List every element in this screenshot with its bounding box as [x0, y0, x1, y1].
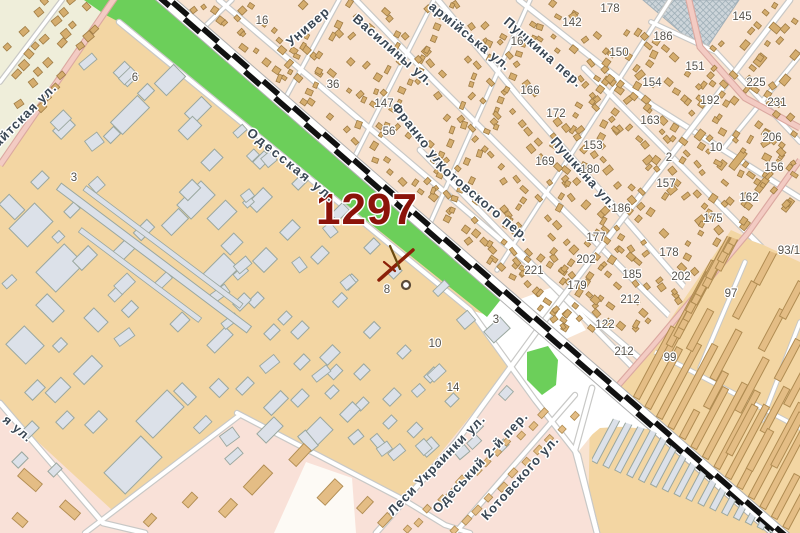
svg-text:178: 178 — [600, 3, 619, 15]
svg-text:122: 122 — [595, 319, 614, 331]
svg-text:162: 162 — [739, 192, 758, 204]
svg-text:150: 150 — [609, 47, 628, 59]
svg-text:178: 178 — [659, 247, 678, 259]
svg-text:14: 14 — [447, 382, 460, 394]
svg-text:186: 186 — [653, 31, 672, 43]
svg-text:10: 10 — [710, 142, 723, 154]
svg-text:142: 142 — [562, 17, 581, 29]
svg-text:36: 36 — [327, 79, 340, 91]
svg-text:3: 3 — [71, 172, 77, 184]
svg-text:6: 6 — [132, 72, 138, 84]
svg-text:180: 180 — [580, 164, 599, 176]
svg-text:225: 225 — [746, 77, 765, 89]
svg-text:145: 145 — [732, 11, 751, 23]
svg-text:172: 172 — [546, 108, 565, 120]
svg-text:93/1: 93/1 — [778, 245, 800, 257]
svg-text:153: 153 — [583, 140, 602, 152]
svg-text:177: 177 — [586, 232, 605, 244]
svg-text:2: 2 — [666, 152, 672, 164]
svg-text:163: 163 — [640, 115, 659, 127]
svg-text:202: 202 — [671, 271, 690, 283]
svg-text:156: 156 — [764, 162, 783, 174]
svg-text:206: 206 — [762, 132, 781, 144]
svg-text:16: 16 — [256, 15, 269, 27]
svg-text:56: 56 — [383, 126, 396, 138]
svg-text:192: 192 — [700, 95, 719, 107]
svg-text:212: 212 — [614, 346, 633, 358]
svg-text:175: 175 — [703, 213, 722, 225]
svg-text:147: 147 — [374, 98, 393, 110]
svg-text:212: 212 — [620, 294, 639, 306]
svg-text:186: 186 — [611, 203, 630, 215]
svg-text:97: 97 — [725, 288, 738, 300]
svg-text:16: 16 — [511, 36, 524, 48]
svg-text:157: 157 — [656, 178, 675, 190]
svg-text:99: 99 — [664, 352, 677, 364]
svg-text:10: 10 — [429, 338, 442, 350]
svg-text:179: 179 — [567, 280, 586, 292]
svg-text:8: 8 — [384, 284, 390, 296]
svg-text:3: 3 — [493, 314, 499, 326]
svg-text:169: 169 — [535, 156, 554, 168]
svg-text:221: 221 — [524, 265, 543, 277]
svg-text:185: 185 — [622, 269, 641, 281]
svg-text:151: 151 — [685, 61, 704, 73]
svg-text:166: 166 — [520, 85, 539, 97]
svg-text:231: 231 — [767, 97, 786, 109]
svg-text:202: 202 — [576, 254, 595, 266]
svg-text:154: 154 — [642, 77, 662, 89]
